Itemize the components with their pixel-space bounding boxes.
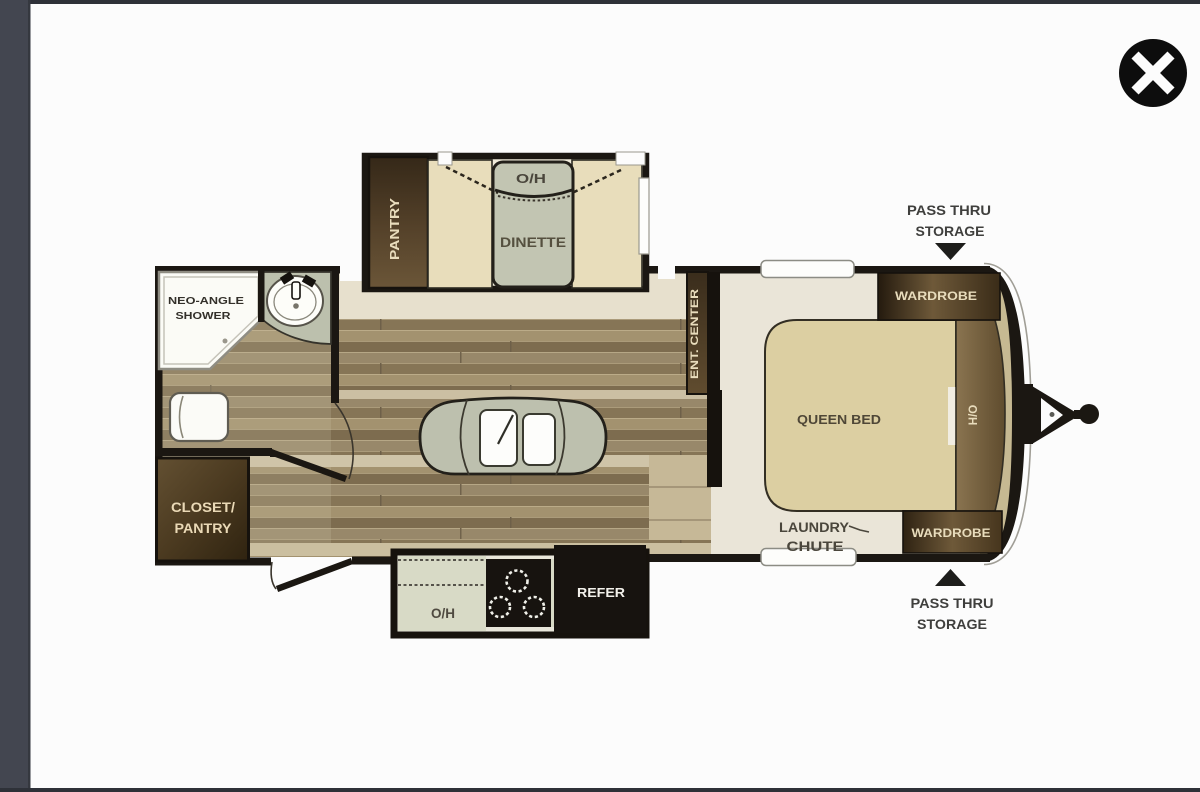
- svg-text:REFER: REFER: [577, 585, 626, 600]
- svg-text:LAUNDRY: LAUNDRY: [779, 520, 849, 535]
- svg-text:CLOSET/: CLOSET/: [171, 500, 235, 515]
- svg-text:STORAGE: STORAGE: [917, 616, 987, 632]
- svg-text:PASS THRU: PASS THRU: [911, 595, 994, 611]
- svg-text:SHOWER: SHOWER: [176, 310, 231, 322]
- svg-text:O/H: O/H: [431, 606, 455, 621]
- svg-text:STORAGE: STORAGE: [916, 223, 985, 239]
- svg-text:PANTRY: PANTRY: [387, 198, 402, 260]
- svg-text:CHUTE: CHUTE: [787, 539, 844, 554]
- svg-text:H/O: H/O: [968, 405, 980, 426]
- svg-text:WARDROBE: WARDROBE: [895, 289, 977, 303]
- svg-text:QUEEN BED: QUEEN BED: [797, 412, 881, 427]
- svg-text:WARDROBE: WARDROBE: [912, 526, 991, 540]
- svg-text:ENT. CENTER: ENT. CENTER: [689, 289, 701, 379]
- svg-text:O/H: O/H: [516, 171, 546, 186]
- svg-text:DINETTE: DINETTE: [500, 235, 566, 250]
- svg-text:PASS THRU: PASS THRU: [907, 202, 991, 218]
- svg-text:PANTRY: PANTRY: [175, 521, 232, 536]
- svg-text:NEO-ANGLE: NEO-ANGLE: [168, 295, 244, 307]
